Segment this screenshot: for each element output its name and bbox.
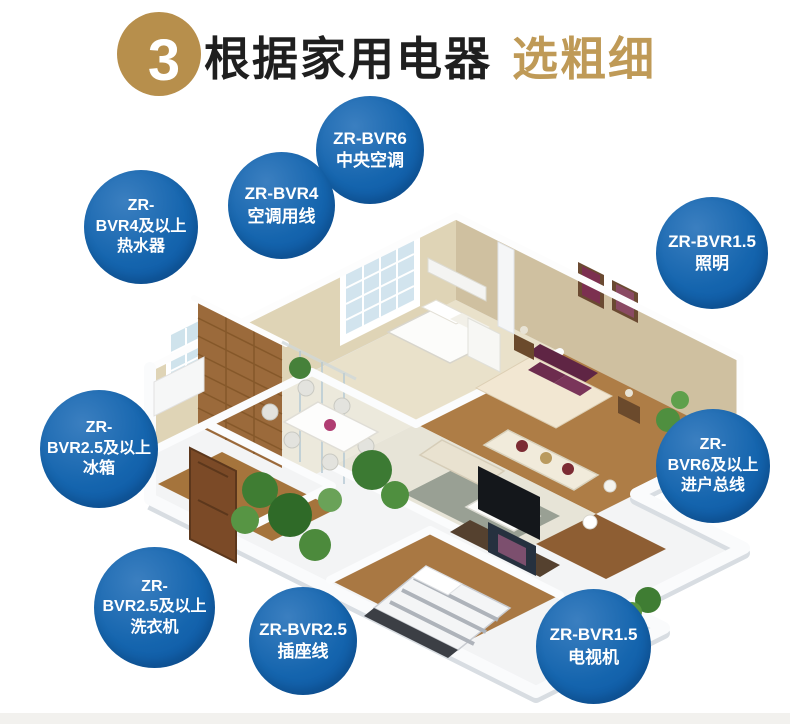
wire-spec: BVR2.5及以上 — [102, 597, 206, 617]
wire-spec: ZR-BVR4 — [245, 183, 319, 205]
next-section-strip — [0, 713, 790, 724]
wire-spec: ZR- — [128, 196, 155, 216]
wire-spec: ZR- — [700, 435, 727, 455]
wire-spec: ZR-BVR6 — [333, 128, 407, 150]
wire-spec: BVR2.5及以上 — [47, 439, 151, 459]
appliance-label: 电视机 — [568, 647, 619, 669]
step-number-badge: 3 — [117, 12, 201, 96]
bedroom-divider-wall — [498, 242, 514, 334]
appliance-label: 冰箱 — [83, 459, 115, 479]
wire-badge-tv: ZR-BVR1.5 电视机 — [536, 589, 651, 704]
wire-badge-socket: ZR-BVR2.5 插座线 — [249, 587, 357, 695]
promo-infographic: 3 根据家用电器 选粗细 ZR-BVR6 中央空调 ZR-BVR4 空调用线 Z… — [0, 0, 790, 724]
wire-spec: ZR-BVR1.5 — [668, 231, 756, 253]
wire-spec: ZR-BVR2.5 — [259, 619, 347, 641]
title-gold-part: 选粗细 — [512, 23, 656, 89]
wire-badge-lighting: ZR-BVR1.5 照明 — [656, 197, 768, 309]
page-title: 根据家用电器 选粗细 — [204, 26, 656, 86]
appliance-label: 洗衣机 — [130, 618, 178, 638]
wire-spec: BVR6及以上 — [668, 456, 759, 476]
wire-badge-ac-wire: ZR-BVR4 空调用线 — [228, 152, 335, 259]
appliance-label: 插座线 — [278, 641, 329, 663]
title-black-part: 根据家用电器 — [204, 23, 492, 89]
wire-badge-main-line: ZR- BVR6及以上 进户总线 — [656, 409, 770, 523]
wire-spec: ZR-BVR1.5 — [550, 624, 638, 646]
appliance-label: 热水器 — [117, 237, 165, 257]
step-number: 3 — [148, 32, 180, 90]
appliance-label: 进户总线 — [681, 476, 745, 496]
wire-spec: ZR- — [141, 577, 168, 597]
appliance-label: 中央空调 — [336, 150, 404, 172]
appliance-label: 照明 — [695, 253, 729, 275]
wire-badge-water-heater: ZR- BVR4及以上 热水器 — [84, 170, 198, 284]
appliance-label: 空调用线 — [248, 206, 316, 228]
wire-spec: BVR4及以上 — [96, 217, 187, 237]
wire-badge-fridge: ZR- BVR2.5及以上 冰箱 — [40, 390, 158, 508]
wire-spec: ZR- — [86, 418, 113, 438]
wire-badge-washer: ZR- BVR2.5及以上 洗衣机 — [94, 547, 215, 668]
